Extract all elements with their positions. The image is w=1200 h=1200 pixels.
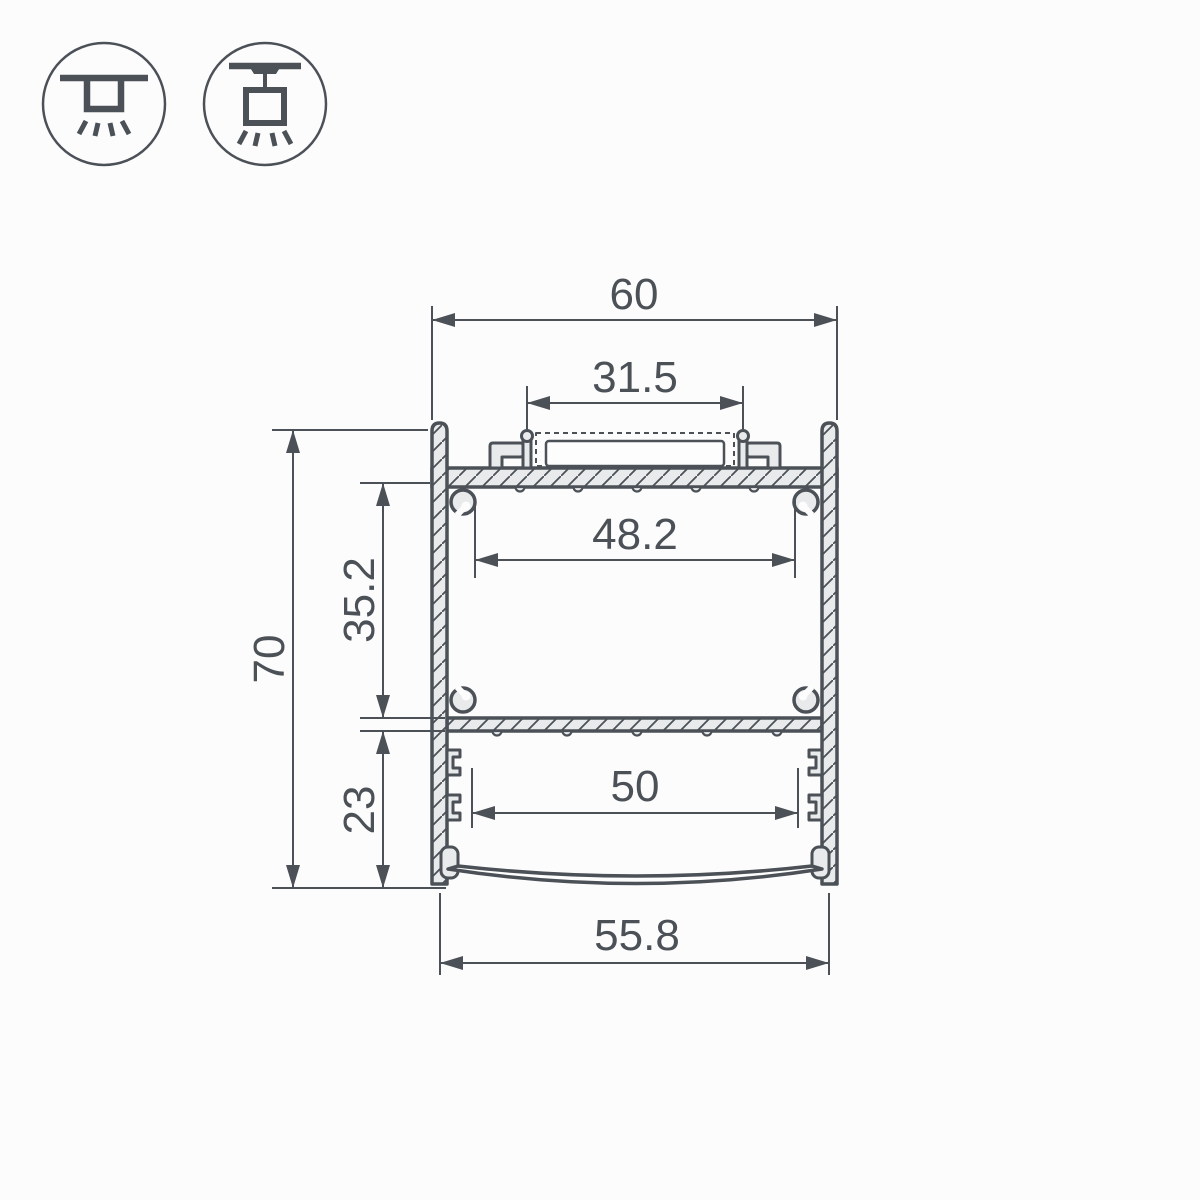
led-module-insert — [546, 441, 724, 466]
dimension-diffuser-width: 55.8 — [440, 893, 829, 975]
top-plate — [432, 468, 837, 487]
dimensions: 60 31.5 48.2 50 — [245, 270, 837, 975]
profile-drawing-svg: 60 31.5 48.2 50 — [0, 0, 1200, 1200]
dimension-upper-chamber-height: 35.2 — [335, 483, 445, 718]
icon-circle — [204, 43, 326, 165]
left-snap-clip — [490, 443, 524, 468]
screw-boss — [451, 687, 475, 712]
diffuser-cover — [448, 866, 822, 884]
dim-led-slot-width-label: 31.5 — [592, 353, 678, 402]
right-wall — [822, 423, 837, 884]
icon-circle — [43, 43, 165, 165]
screw-boss — [794, 490, 818, 515]
dim-lower-chamber-height-label: 23 — [335, 786, 384, 835]
dim-lower-chamber-width-label: 50 — [611, 762, 660, 811]
dim-overall-width-label: 60 — [610, 270, 659, 319]
left-wall — [432, 423, 447, 884]
dimension-lower-chamber-height: 23 — [335, 731, 445, 888]
dimension-upper-chamber-width: 48.2 — [475, 500, 795, 578]
led-module-dashed — [536, 433, 734, 466]
right-snap-clip — [746, 443, 780, 468]
light-rays-icon — [239, 131, 291, 146]
blueprint-canvas: 60 31.5 48.2 50 — [0, 0, 1200, 1200]
lamp-box — [87, 78, 121, 109]
dimension-led-slot-width: 31.5 — [527, 353, 743, 430]
screw-boss — [451, 490, 475, 515]
surface-mount-icon — [43, 43, 165, 165]
dim-upper-chamber-width-label: 48.2 — [592, 510, 678, 559]
dim-overall-height-label: 70 — [245, 635, 294, 684]
lamp-box — [246, 90, 284, 123]
dimension-lower-chamber-width: 50 — [472, 762, 798, 828]
light-rays-icon — [79, 121, 129, 136]
pendant-mount-icon — [204, 43, 326, 165]
dim-upper-chamber-height-label: 35.2 — [335, 557, 384, 643]
mid-divider — [447, 718, 822, 731]
canopy — [249, 66, 281, 74]
screw-boss — [794, 687, 818, 712]
dim-diffuser-width-label: 55.8 — [594, 911, 680, 960]
